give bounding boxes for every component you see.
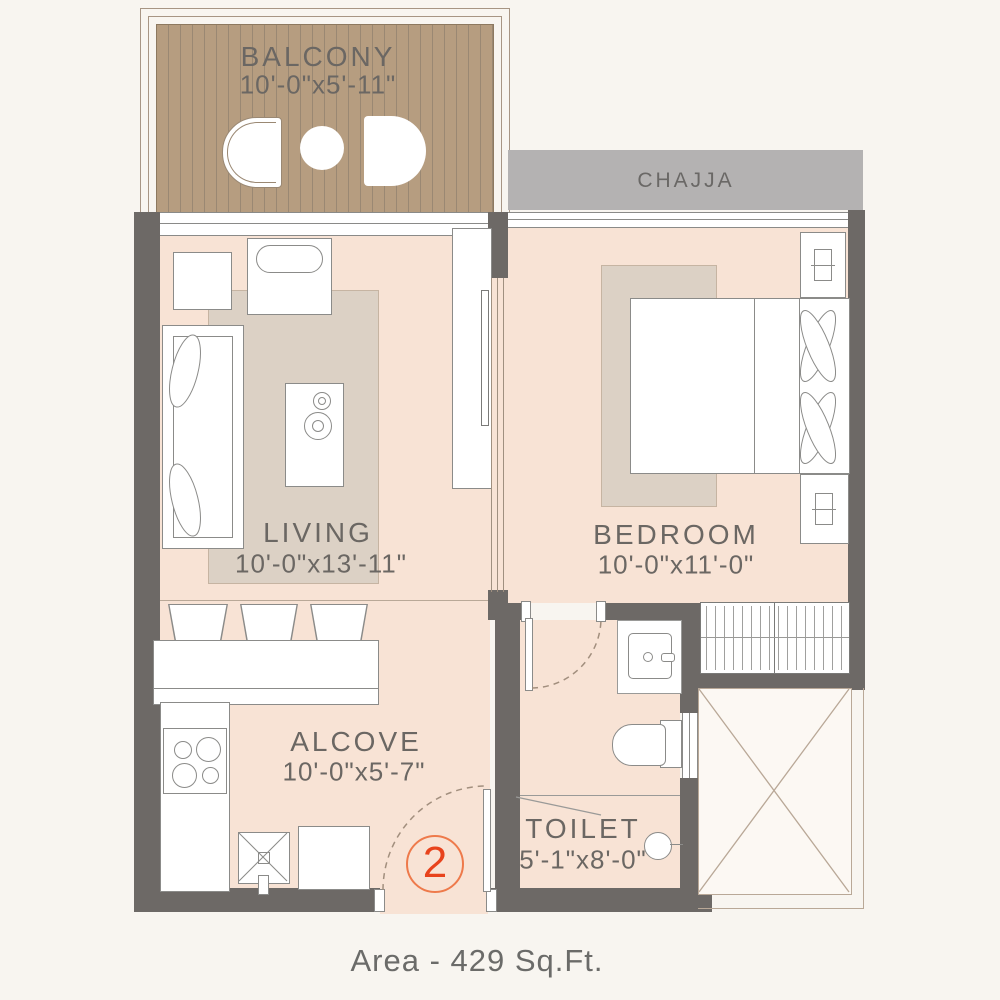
shower-divider-line <box>520 795 680 796</box>
bedroom-label: BEDROOM <box>593 519 759 551</box>
sink-drain <box>258 852 270 864</box>
sink-faucet <box>258 875 269 895</box>
entrance-door-jamb-right <box>486 889 497 912</box>
bedroom-dims: 10'-0"x11'-0" <box>598 550 755 581</box>
coffee-table-decor-large <box>304 412 332 440</box>
living-label: LIVING <box>263 517 373 549</box>
washbasin-drain <box>643 652 653 662</box>
hob-burner-large-1 <box>196 737 221 762</box>
entrance-door-leaf <box>483 789 491 892</box>
bar-stool-3-seat <box>311 605 367 640</box>
bar-counter-edge-line <box>154 688 378 689</box>
coffee-table-decor-small-dot <box>318 397 326 405</box>
bed-sheet-line-2 <box>799 299 800 473</box>
shower-head-arm <box>670 844 683 845</box>
shower-head-icon <box>644 832 672 860</box>
balcony-dims: 10'-0"x5'-11" <box>240 70 397 101</box>
bar-stool-1-seat <box>169 605 227 640</box>
washbasin-tap-icon <box>661 653 675 662</box>
lamp-line <box>811 265 835 266</box>
armchair <box>247 238 332 315</box>
balcony-label: BALCONY <box>241 41 396 73</box>
wall-toilet-left <box>495 603 520 888</box>
balcony-chair-left-inner-line <box>227 122 276 183</box>
wall-toilet-top-right <box>600 603 712 620</box>
lamp-line <box>812 509 836 510</box>
wall-bottom-middle <box>488 888 712 912</box>
chajja-label: CHAJJA <box>637 169 734 193</box>
hob-burner-large-2 <box>172 763 197 788</box>
wall-left <box>134 212 160 912</box>
wall-toilet-right-upper <box>680 620 700 713</box>
washbasin <box>628 633 672 679</box>
area-label: Area - 429 Sq.Ft. <box>350 943 603 979</box>
wall-right <box>848 210 865 690</box>
living-dims: 10'-0"x13'-11" <box>235 549 407 580</box>
bar-stool-1 <box>168 604 228 641</box>
duct-box <box>698 688 852 895</box>
bar-counter <box>153 640 379 705</box>
unit-number-badge: 2 <box>406 835 464 893</box>
toilet-vent-window <box>682 713 698 778</box>
wall-toilet-right-lower <box>680 778 700 888</box>
hob <box>163 728 227 794</box>
unit-number: 2 <box>423 838 447 888</box>
coffee-table <box>285 383 344 487</box>
bed-sheet-line-1 <box>754 299 755 473</box>
wardrobe <box>700 602 850 674</box>
alcove-boundary-line <box>160 600 488 601</box>
wc-bowl <box>612 724 666 766</box>
toilet-label: TOILET <box>525 813 641 845</box>
balcony-chair-left <box>222 117 282 188</box>
bed <box>630 298 850 474</box>
bar-stool-3 <box>310 604 368 641</box>
armchair-cushion <box>256 245 323 273</box>
living-balcony-sliding-window <box>160 212 488 236</box>
kitchen-platform <box>298 826 370 890</box>
toilet-door-leaf <box>525 618 533 691</box>
sliding-door-track <box>491 278 504 592</box>
alcove-dims: 10'-0"x5'-7" <box>282 757 425 788</box>
wardrobe-shelf-line <box>701 637 849 638</box>
coffee-table-decor-small <box>313 392 331 410</box>
nightstand-top <box>800 232 846 298</box>
floor-plan: BALCONY 10'-0"x5'-11" CHAJJA LIVING 10'-… <box>0 0 1000 1000</box>
sofa-seat <box>173 336 233 538</box>
bedroom-window <box>508 212 848 228</box>
balcony-table <box>300 126 344 170</box>
hob-burner-small-2 <box>202 767 219 784</box>
kitchen-sink <box>238 832 290 884</box>
coffee-table-decor-large-dot <box>312 420 324 432</box>
toilet-door-jamb-right <box>596 601 606 622</box>
lamp-icon <box>815 493 833 525</box>
lamp-icon <box>814 249 832 281</box>
tv <box>481 290 489 426</box>
bar-stool-2 <box>240 604 298 641</box>
toilet-dims: 5'-1"x8'-0" <box>519 845 647 876</box>
side-table <box>173 252 232 310</box>
alcove-label: ALCOVE <box>290 726 422 758</box>
bar-stool-2-seat <box>241 605 297 640</box>
wardrobe-hatch <box>706 606 844 670</box>
washbasin-counter <box>617 620 682 694</box>
nightstand-bottom <box>800 474 849 544</box>
entrance-door-jamb-left <box>374 889 385 912</box>
sofa <box>162 325 244 549</box>
wardrobe-divider <box>774 603 775 673</box>
hob-burner-small-1 <box>174 741 192 759</box>
